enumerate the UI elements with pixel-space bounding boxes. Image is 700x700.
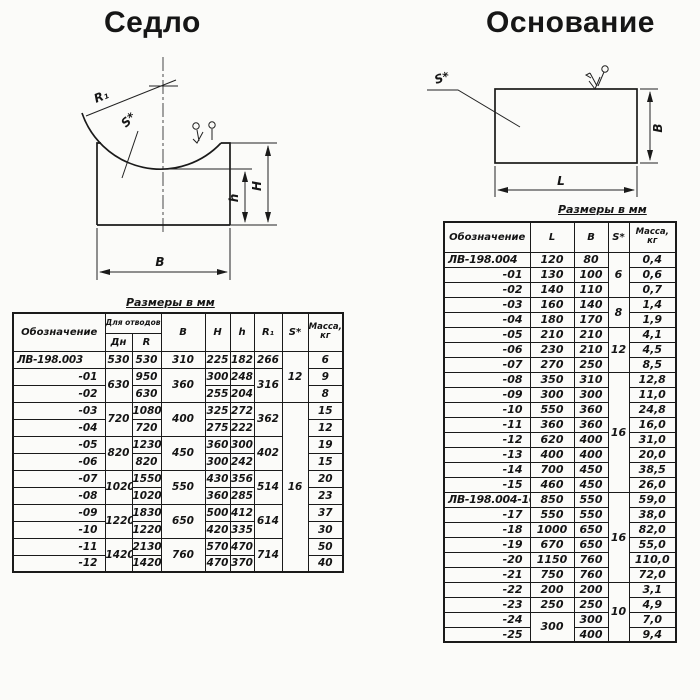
designation-cell: -05	[444, 327, 530, 342]
saddle-title: Седло	[104, 6, 201, 40]
value-cell: 1020	[132, 487, 161, 504]
table-row: -2175076072,0	[444, 567, 676, 582]
value-cell: 20,0	[629, 447, 676, 462]
table-row: -021401100,7	[444, 282, 676, 297]
value-cell: 850	[530, 492, 574, 507]
value-cell: 300	[574, 387, 608, 402]
col-r1: R₁	[254, 313, 282, 351]
value-cell: 38,0	[629, 507, 676, 522]
value-cell: 450	[574, 477, 608, 492]
value-cell: 550	[530, 402, 574, 417]
value-cell: 402	[254, 436, 282, 470]
value-cell: 1020	[105, 470, 132, 504]
value-cell: 1420	[105, 538, 132, 572]
thickness-leader	[427, 90, 520, 127]
designation-cell: -07	[444, 357, 530, 372]
saddle-table: Обозначение Для отводов B H h R₁ S* Масс…	[12, 312, 344, 573]
table-row: -1755055038,0	[444, 507, 676, 522]
value-cell: 16	[608, 492, 629, 582]
table-row: -1470045038,5	[444, 462, 676, 477]
value-cell: 650	[161, 504, 205, 538]
value-cell: 700	[530, 462, 574, 477]
value-cell: 316	[254, 368, 282, 402]
designation-cell: -25	[444, 627, 530, 642]
designation-cell: -24	[444, 612, 530, 627]
value-cell: 300	[205, 453, 230, 470]
value-cell: 23	[308, 487, 343, 504]
value-cell: 300	[205, 368, 230, 385]
value-cell: 400	[161, 402, 205, 436]
value-cell: 400	[574, 432, 608, 447]
table-row: -1340040020,0	[444, 447, 676, 462]
value-cell: 16,0	[629, 417, 676, 432]
value-cell: 350	[530, 372, 574, 387]
base-title: Основание	[486, 6, 655, 40]
thickness-leader	[122, 131, 138, 178]
value-cell: 360	[574, 417, 608, 432]
value-cell: 59,0	[629, 492, 676, 507]
value-cell: 400	[574, 447, 608, 462]
value-cell: 8,5	[629, 357, 676, 372]
value-cell: 270	[530, 357, 574, 372]
table-row: ЛВ-198.003530530310225182266126	[13, 351, 343, 368]
designation-cell: -03	[13, 402, 105, 419]
col-l: L	[530, 222, 574, 252]
value-cell: 1,9	[629, 312, 676, 327]
value-cell: 24,8	[629, 402, 676, 417]
value-cell: 420	[205, 521, 230, 538]
dim-B-label: B	[155, 255, 164, 269]
value-cell: 1230	[132, 436, 161, 453]
value-cell: 130	[530, 267, 574, 282]
value-cell: 0,6	[629, 267, 676, 282]
value-cell: 38,5	[629, 462, 676, 477]
value-cell: 242	[230, 453, 254, 470]
value-cell: 16	[608, 372, 629, 492]
value-cell: 300	[530, 612, 574, 642]
col-mass: Масса, кг	[629, 222, 676, 252]
value-cell: 670	[530, 537, 574, 552]
value-cell: 1550	[132, 470, 161, 487]
value-cell: 360	[205, 487, 230, 504]
col-H: H	[205, 313, 230, 351]
value-cell: 300	[574, 612, 608, 627]
value-cell: 140	[530, 282, 574, 297]
designation-cell: -04	[13, 419, 105, 436]
value-cell: 9,4	[629, 627, 676, 642]
value-cell: 2130	[132, 538, 161, 555]
value-cell: 430	[205, 470, 230, 487]
value-cell: 1220	[105, 504, 132, 538]
value-cell: 1,4	[629, 297, 676, 312]
table-row: -041801701,9	[444, 312, 676, 327]
base-drawing: S* B L	[415, 55, 690, 205]
designation-cell: -12	[444, 432, 530, 447]
value-cell: 230	[530, 342, 574, 357]
value-cell: 950	[132, 368, 161, 385]
base-table: Обозначение L B S* Масса, кг ЛВ-198.0041…	[443, 221, 677, 643]
value-cell: 4,1	[629, 327, 676, 342]
value-cell: 310	[574, 372, 608, 387]
designation-cell: -12	[13, 555, 105, 572]
table-row: ЛВ-198.0041208060,4	[444, 252, 676, 267]
value-cell: 204	[230, 385, 254, 402]
value-cell: 1000	[530, 522, 574, 537]
value-cell: 760	[574, 567, 608, 582]
designation-cell: -15	[444, 477, 530, 492]
designation-cell: ЛВ-198.003	[13, 351, 105, 368]
value-cell: 530	[105, 351, 132, 368]
value-cell: 210	[530, 327, 574, 342]
value-cell: 110	[574, 282, 608, 297]
thickness-label: S*	[433, 69, 452, 87]
value-cell: 500	[205, 504, 230, 521]
table-row: -1262040031,0	[444, 432, 676, 447]
col-mass: Масса, кг	[308, 313, 343, 351]
value-cell: 1420	[132, 555, 161, 572]
table-row: -1967065055,0	[444, 537, 676, 552]
value-cell: 20	[308, 470, 343, 487]
table-row: -083503101612,8	[444, 372, 676, 387]
value-cell: 272	[230, 402, 254, 419]
surface-finish-icon	[193, 122, 215, 143]
value-cell: 255	[205, 385, 230, 402]
value-cell: 285	[230, 487, 254, 504]
designation-cell: -10	[13, 521, 105, 538]
value-cell: 620	[530, 432, 574, 447]
col-s: S*	[282, 313, 308, 351]
extension-lines	[495, 89, 658, 197]
table-row: -05210210124,1	[444, 327, 676, 342]
value-cell: 12	[282, 351, 308, 402]
value-cell: 15	[308, 402, 343, 419]
value-cell: 12	[608, 327, 629, 372]
designation-cell: -10	[444, 402, 530, 417]
thickness-label: S*	[118, 109, 139, 130]
table-row: -1546045026,0	[444, 477, 676, 492]
col-s: S*	[608, 222, 629, 252]
designation-cell: -11	[13, 538, 105, 555]
value-cell: 0,7	[629, 282, 676, 297]
value-cell: 3,1	[629, 582, 676, 597]
table-row: -22200200103,1	[444, 582, 676, 597]
value-cell: 550	[530, 507, 574, 522]
designation-cell: -11	[444, 417, 530, 432]
size-note-saddle: Размеры в мм	[126, 296, 215, 309]
value-cell: 750	[530, 567, 574, 582]
value-cell: 210	[574, 327, 608, 342]
designation-cell: -08	[13, 487, 105, 504]
value-cell: 250	[574, 597, 608, 612]
col-h: h	[230, 313, 254, 351]
table-row: -1136036016,0	[444, 417, 676, 432]
designation-cell: -23	[444, 597, 530, 612]
value-cell: 140	[574, 297, 608, 312]
value-cell: 820	[105, 436, 132, 470]
value-cell: 7,0	[629, 612, 676, 627]
value-cell: 30	[308, 521, 343, 538]
value-cell: 720	[105, 402, 132, 436]
value-cell: 550	[161, 470, 205, 504]
value-cell: 16	[282, 402, 308, 572]
value-cell: 180	[530, 312, 574, 327]
value-cell: 80	[574, 252, 608, 267]
designation-cell: -21	[444, 567, 530, 582]
designation-cell: -09	[13, 504, 105, 521]
value-cell: 530	[132, 351, 161, 368]
value-cell: 360	[161, 368, 205, 402]
value-cell: 1220	[132, 521, 161, 538]
designation-cell: -19	[444, 537, 530, 552]
table-row: -18100065082,0	[444, 522, 676, 537]
surface-finish-icon	[586, 66, 608, 89]
designation-cell: -02	[13, 385, 105, 402]
designation-cell: -01	[444, 267, 530, 282]
value-cell: 9	[308, 368, 343, 385]
designation-cell: -07	[13, 470, 105, 487]
value-cell: 182	[230, 351, 254, 368]
value-cell: 1150	[530, 552, 574, 567]
designation-cell: -03	[444, 297, 530, 312]
value-cell: 630	[132, 385, 161, 402]
table-row: -0930030011,0	[444, 387, 676, 402]
value-cell: 335	[230, 521, 254, 538]
value-cell: 356	[230, 470, 254, 487]
size-note-base: Размеры в мм	[558, 203, 647, 216]
dim-L-label: L	[557, 174, 565, 188]
value-cell: 310	[161, 351, 205, 368]
col-group-bends: Для отводов	[105, 313, 161, 333]
value-cell: 11,0	[629, 387, 676, 402]
value-cell: 360	[530, 417, 574, 432]
value-cell: 570	[205, 538, 230, 555]
value-cell: 40	[308, 555, 343, 572]
value-cell: 614	[254, 504, 282, 538]
value-cell: 200	[574, 582, 608, 597]
value-cell: 325	[205, 402, 230, 419]
designation-cell: -05	[13, 436, 105, 453]
designation-cell: -08	[444, 372, 530, 387]
value-cell: 450	[574, 462, 608, 477]
col-designation: Обозначение	[13, 313, 105, 351]
value-cell: 4,9	[629, 597, 676, 612]
value-cell: 714	[254, 538, 282, 572]
value-cell: 460	[530, 477, 574, 492]
value-cell: 760	[574, 552, 608, 567]
value-cell: 720	[132, 419, 161, 436]
value-cell: 160	[530, 297, 574, 312]
value-cell: 100	[574, 267, 608, 282]
value-cell: 275	[205, 419, 230, 436]
table-row: -072702508,5	[444, 357, 676, 372]
value-cell: 26,0	[629, 477, 676, 492]
table-row: -062302104,5	[444, 342, 676, 357]
value-cell: 300	[230, 436, 254, 453]
value-cell: 222	[230, 419, 254, 436]
value-cell: 248	[230, 368, 254, 385]
value-cell: 225	[205, 351, 230, 368]
col-b: B	[574, 222, 608, 252]
value-cell: 72,0	[629, 567, 676, 582]
value-cell: 362	[254, 402, 282, 436]
value-cell: 37	[308, 504, 343, 521]
value-cell: 4,5	[629, 342, 676, 357]
value-cell: 8	[308, 385, 343, 402]
value-cell: 19	[308, 436, 343, 453]
value-cell: 10	[608, 582, 629, 642]
value-cell: 360	[574, 402, 608, 417]
table-row: -011301000,6	[444, 267, 676, 282]
designation-cell: -06	[13, 453, 105, 470]
designation-cell: -01	[13, 368, 105, 385]
table-row: ЛВ-198.004-168505501659,0	[444, 492, 676, 507]
value-cell: 31,0	[629, 432, 676, 447]
designation-cell: -20	[444, 552, 530, 567]
value-cell: 450	[161, 436, 205, 470]
designation-cell: ЛВ-198.004-16	[444, 492, 530, 507]
col-b: B	[161, 313, 205, 351]
radius-label: R₁	[92, 87, 111, 105]
value-cell: 82,0	[629, 522, 676, 537]
saddle-arc	[82, 113, 221, 169]
value-cell: 300	[530, 387, 574, 402]
value-cell: 12,8	[629, 372, 676, 387]
saddle-body-outline	[97, 143, 230, 225]
designation-cell: -18	[444, 522, 530, 537]
value-cell: 650	[574, 537, 608, 552]
dim-h-label: h	[227, 194, 241, 203]
extension-lines	[97, 143, 277, 280]
value-cell: 550	[574, 507, 608, 522]
designation-cell: -09	[444, 387, 530, 402]
table-row: -0316014081,4	[444, 297, 676, 312]
value-cell: 1830	[132, 504, 161, 521]
value-cell: 760	[161, 538, 205, 572]
value-cell: 514	[254, 470, 282, 504]
value-cell: 110,0	[629, 552, 676, 567]
col-r: R	[132, 333, 161, 351]
value-cell: 400	[530, 447, 574, 462]
value-cell: 412	[230, 504, 254, 521]
value-cell: 630	[105, 368, 132, 402]
value-cell: 6	[608, 252, 629, 297]
value-cell: 55,0	[629, 537, 676, 552]
value-cell: 50	[308, 538, 343, 555]
dim-H-label: H	[250, 181, 264, 191]
value-cell: 470	[230, 538, 254, 555]
value-cell: 400	[574, 627, 608, 642]
table-row: -243003007,0	[444, 612, 676, 627]
designation-cell: ЛВ-198.004	[444, 252, 530, 267]
designation-cell: -06	[444, 342, 530, 357]
value-cell: 6	[308, 351, 343, 368]
designation-cell: -17	[444, 507, 530, 522]
designation-cell: -02	[444, 282, 530, 297]
value-cell: 550	[574, 492, 608, 507]
designation-cell: -04	[444, 312, 530, 327]
value-cell: 266	[254, 351, 282, 368]
value-cell: 170	[574, 312, 608, 327]
designation-cell: -22	[444, 582, 530, 597]
value-cell: 120	[530, 252, 574, 267]
table-row: -0372010804003252723621615	[13, 402, 343, 419]
dim-B-label: B	[651, 123, 665, 132]
table-row: -1055036024,8	[444, 402, 676, 417]
value-cell: 360	[205, 436, 230, 453]
value-cell: 200	[530, 582, 574, 597]
saddle-drawing: R₁ S* h H B	[0, 40, 310, 290]
value-cell: 1080	[132, 402, 161, 419]
col-designation: Обозначение	[444, 222, 530, 252]
value-cell: 8	[608, 297, 629, 327]
col-dn: Дн	[105, 333, 132, 351]
value-cell: 250	[530, 597, 574, 612]
value-cell: 820	[132, 453, 161, 470]
drawing-sheet: Седло Основание R₁ S* h H B	[0, 0, 700, 700]
value-cell: 12	[308, 419, 343, 436]
value-cell: 210	[574, 342, 608, 357]
table-row: -232502504,9	[444, 597, 676, 612]
value-cell: 0,4	[629, 252, 676, 267]
designation-cell: -13	[444, 447, 530, 462]
designation-cell: -14	[444, 462, 530, 477]
base-plate-outline	[495, 89, 637, 163]
value-cell: 470	[205, 555, 230, 572]
table-row: -201150760110,0	[444, 552, 676, 567]
value-cell: 250	[574, 357, 608, 372]
value-cell: 15	[308, 453, 343, 470]
value-cell: 370	[230, 555, 254, 572]
value-cell: 650	[574, 522, 608, 537]
